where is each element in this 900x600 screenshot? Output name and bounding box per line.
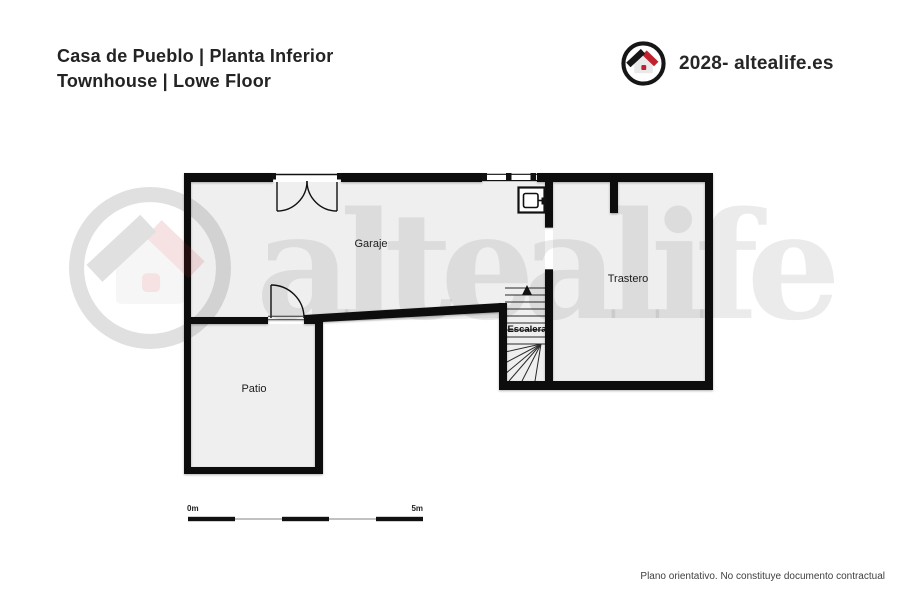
- garage-floor: [191, 182, 545, 322]
- scale-end-label: 5m: [403, 504, 423, 513]
- water-heater-icon: [519, 188, 547, 213]
- brand-logo-icon: [620, 40, 667, 87]
- room-label-trastero: Trastero: [568, 273, 688, 285]
- room-label-garaje: Garaje: [311, 238, 431, 250]
- window-symbol: [482, 173, 538, 181]
- page-title-en: Townhouse | Lowe Floor: [57, 69, 334, 94]
- patio-floor: [191, 324, 315, 467]
- scale-bar: [188, 517, 423, 521]
- page-title-es: Casa de Pueblo | Planta Inferior: [57, 44, 334, 69]
- room-fills: [191, 182, 705, 467]
- floor-plan-page: { "header": { "title_line1": "Casa de Pu…: [0, 0, 900, 600]
- opening-jambs: [545, 228, 553, 270]
- disclaimer-text: Plano orientativo. No constituye documen…: [640, 571, 885, 582]
- scale-start-label: 0m: [187, 504, 199, 513]
- brand-text: 2028- altealife.es: [679, 53, 834, 75]
- title-block: Casa de Pueblo | Planta Inferior Townhou…: [57, 44, 334, 93]
- brand-block: 2028- altealife.es: [620, 40, 834, 87]
- room-label-patio: Patio: [194, 383, 314, 395]
- room-label-escalera: Escalera: [467, 324, 587, 335]
